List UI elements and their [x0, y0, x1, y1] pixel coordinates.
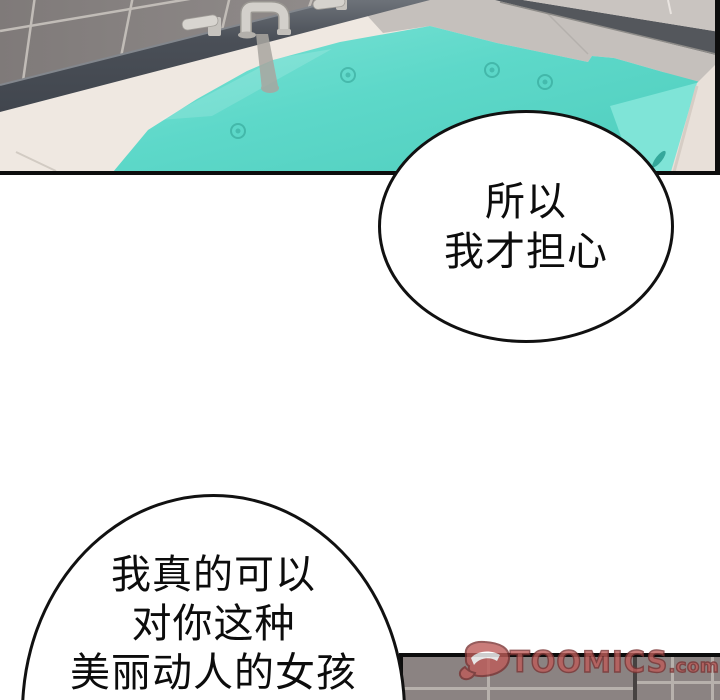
speech-line: 所以 — [378, 177, 674, 227]
tile-grout-line — [671, 657, 674, 700]
speech-line: 我才担心 — [378, 227, 674, 277]
panel-border-right — [715, 0, 720, 175]
tile-corner-seam — [633, 657, 637, 700]
next-panel-tiles — [399, 653, 720, 700]
speech-line: 对你这种 — [21, 600, 406, 649]
comic-page: 所以 我才担心 我真的可以 对你这种 美丽动人的女孩 TOOMICS .com — [0, 0, 720, 700]
speech-bubble-bottom-text: 我真的可以 对你这种 美丽动人的女孩 — [21, 551, 406, 698]
speech-line: 美丽动人的女孩 — [21, 649, 406, 698]
tile-grout-line — [487, 657, 490, 700]
tile-grout-line — [637, 681, 720, 684]
speech-bubble-top-text: 所以 我才担心 — [378, 177, 674, 277]
tile-grout-line — [711, 657, 714, 700]
tile-grout-line — [403, 687, 633, 690]
speech-line: 我真的可以 — [21, 551, 406, 600]
